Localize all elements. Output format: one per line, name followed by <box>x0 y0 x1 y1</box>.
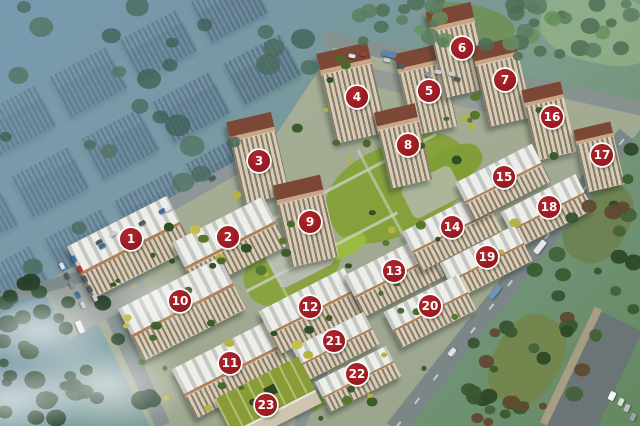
building-marker-3[interactable]: 3 <box>248 150 270 172</box>
building-marker-13[interactable]: 13 <box>383 260 405 282</box>
building-marker-9[interactable]: 9 <box>299 211 321 233</box>
building-marker-12[interactable]: 12 <box>299 296 321 318</box>
building-marker-11[interactable]: 11 <box>219 352 241 374</box>
building-marker-18[interactable]: 18 <box>538 196 560 218</box>
aerial-site-plan: 1234567891011121314151617181920212223 <box>0 0 640 426</box>
building-marker-7[interactable]: 7 <box>494 69 516 91</box>
building-markers: 1234567891011121314151617181920212223 <box>0 0 640 426</box>
building-marker-17[interactable]: 17 <box>591 144 613 166</box>
building-marker-14[interactable]: 14 <box>441 216 463 238</box>
building-marker-8[interactable]: 8 <box>397 134 419 156</box>
building-marker-20[interactable]: 20 <box>419 295 441 317</box>
building-marker-16[interactable]: 16 <box>541 106 563 128</box>
building-marker-22[interactable]: 22 <box>346 363 368 385</box>
building-marker-6[interactable]: 6 <box>451 37 473 59</box>
building-marker-5[interactable]: 5 <box>418 80 440 102</box>
building-marker-4[interactable]: 4 <box>346 86 368 108</box>
building-marker-23[interactable]: 23 <box>255 394 277 416</box>
building-marker-1[interactable]: 1 <box>120 228 142 250</box>
building-marker-10[interactable]: 10 <box>169 290 191 312</box>
building-marker-2[interactable]: 2 <box>217 226 239 248</box>
building-marker-15[interactable]: 15 <box>493 166 515 188</box>
building-marker-19[interactable]: 19 <box>476 246 498 268</box>
building-marker-21[interactable]: 21 <box>323 330 345 352</box>
